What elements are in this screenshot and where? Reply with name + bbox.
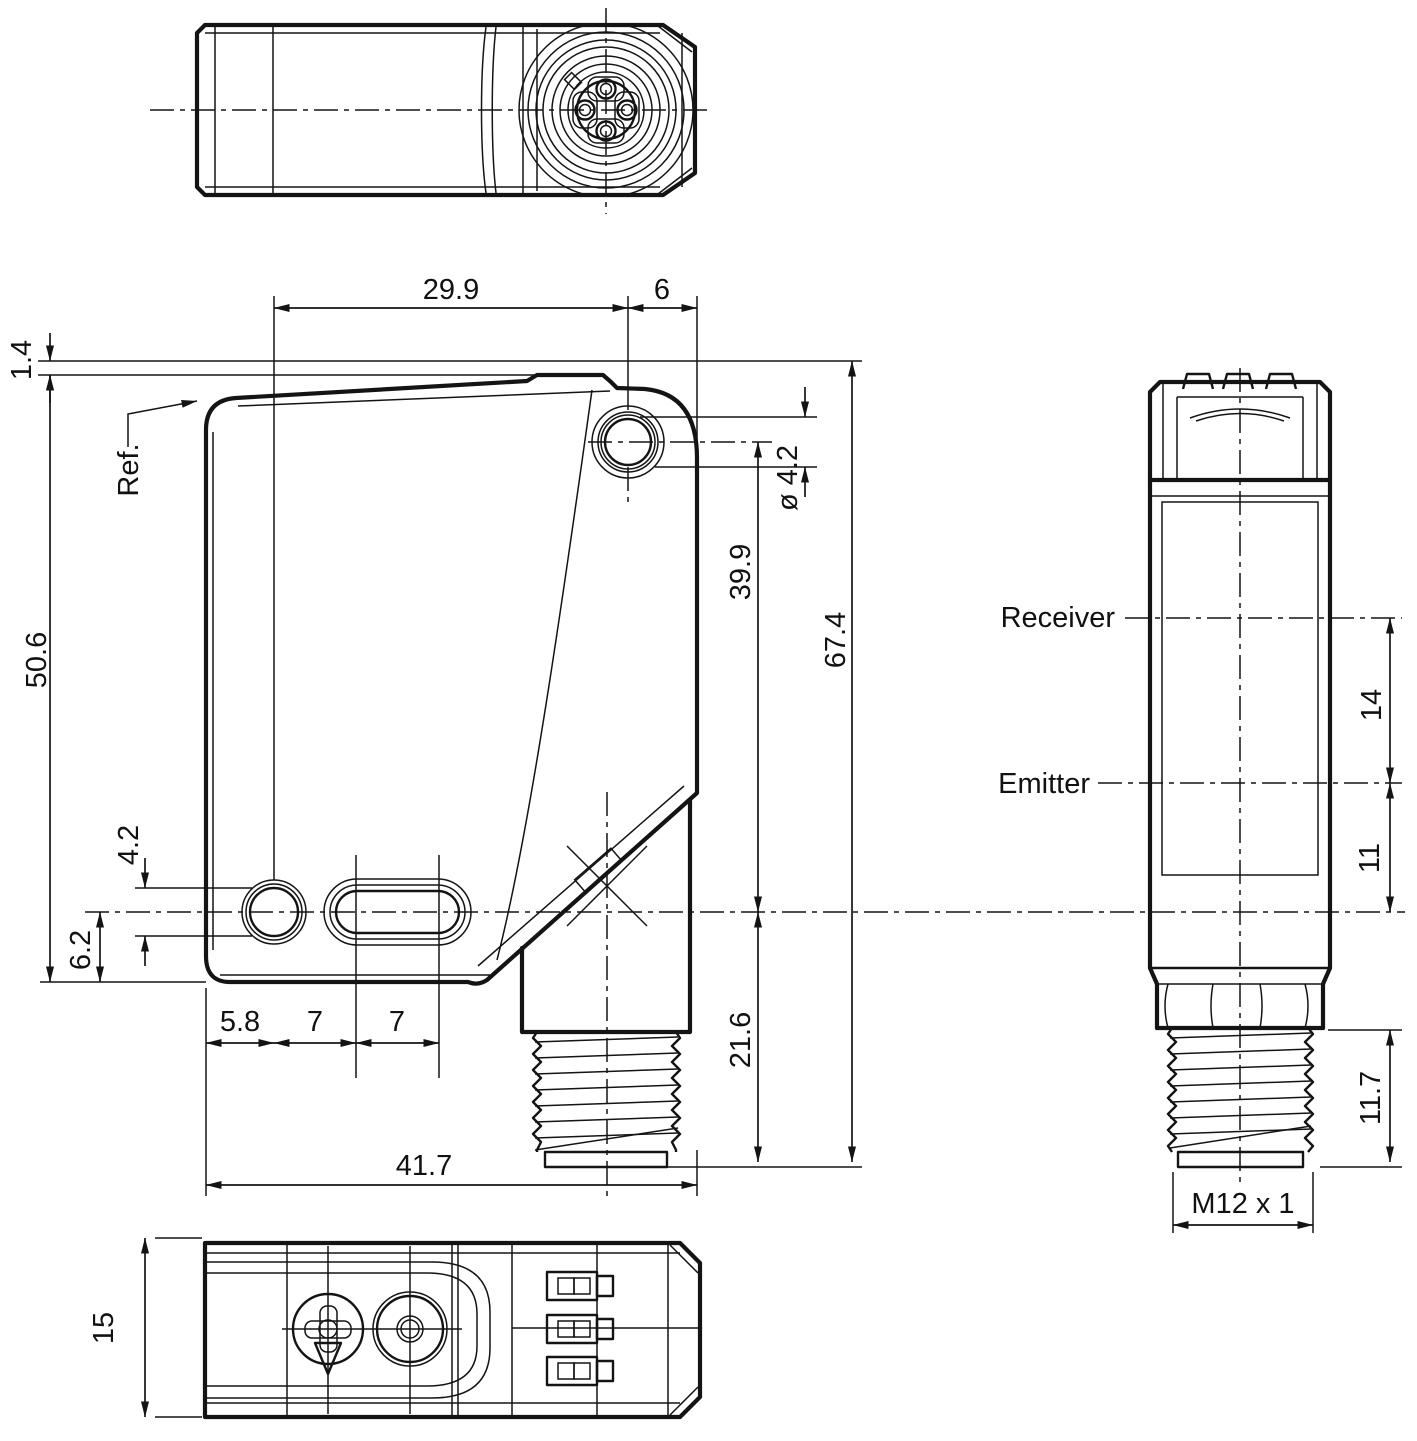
dim-hole-offset-label: 5.8 (220, 1006, 260, 1038)
dim-top-hole-diameter-label: ø 4.2 (772, 445, 804, 511)
bottom-view (205, 1243, 700, 1417)
emitter-label: Emitter (998, 768, 1090, 800)
top-view (150, 8, 712, 214)
dim-hole-diameter-label: 4.2 (113, 825, 145, 865)
dim-pitch-b-label: 7 (389, 1006, 405, 1038)
front-face-contour (497, 390, 592, 960)
ref-label: Ref. (113, 443, 145, 496)
dim-axis-height-label: 6.2 (65, 930, 97, 970)
dim-connector-length-label: 21.6 (725, 1012, 757, 1068)
dimensions-bottom: 15 (88, 1238, 202, 1417)
dimensions-front: 29.9 6 1.4 50.6 4.2 6.2 5.8 7 7 41.7 ø 4… (6, 274, 862, 1196)
dim-depth-label: 15 (88, 1312, 120, 1344)
thread-spec-label: M12 x 1 (1191, 1188, 1294, 1220)
sensor-dimension-drawing: 29.9 6 1.4 50.6 4.2 6.2 5.8 7 7 41.7 ø 4… (0, 0, 1417, 1441)
side-thread-crests (1170, 1033, 1311, 1148)
indicator-block (547, 1272, 613, 1300)
dim-hole-span-label: 29.9 (423, 274, 479, 306)
dim-total-height-label: 67.4 (820, 612, 852, 668)
indicator-block (547, 1315, 613, 1343)
front-view (206, 375, 697, 1198)
dimension-drawing-page: 29.9 6 1.4 50.6 4.2 6.2 5.8 7 7 41.7 ø 4… (0, 0, 1417, 1441)
dimensions-side: Receiver Emitter 14 11 11.7 M12 x 1 (998, 602, 1402, 1233)
indicator-block (547, 1357, 613, 1385)
dim-body-width-label: 41.7 (396, 1150, 452, 1182)
dim-receiver-to-emitter-label: 14 (1356, 689, 1388, 721)
dim-body-height-label: 50.6 (21, 632, 53, 688)
dim-thread-length-label: 11.7 (1355, 1071, 1387, 1125)
ref-leader-arrow (128, 401, 197, 447)
dim-emitter-to-axis-label: 11 (1354, 843, 1386, 873)
front-thread-cap (545, 1152, 667, 1167)
front-body-outline (206, 375, 697, 984)
dim-pitch-a-label: 7 (307, 1006, 323, 1038)
dim-hole-to-edge-label: 6 (654, 274, 670, 306)
dim-step-height-label: 1.4 (6, 340, 38, 380)
dim-hole-to-axis-label: 39.9 (725, 544, 757, 600)
side-view (1098, 368, 1402, 1188)
receiver-label: Receiver (1001, 602, 1116, 634)
